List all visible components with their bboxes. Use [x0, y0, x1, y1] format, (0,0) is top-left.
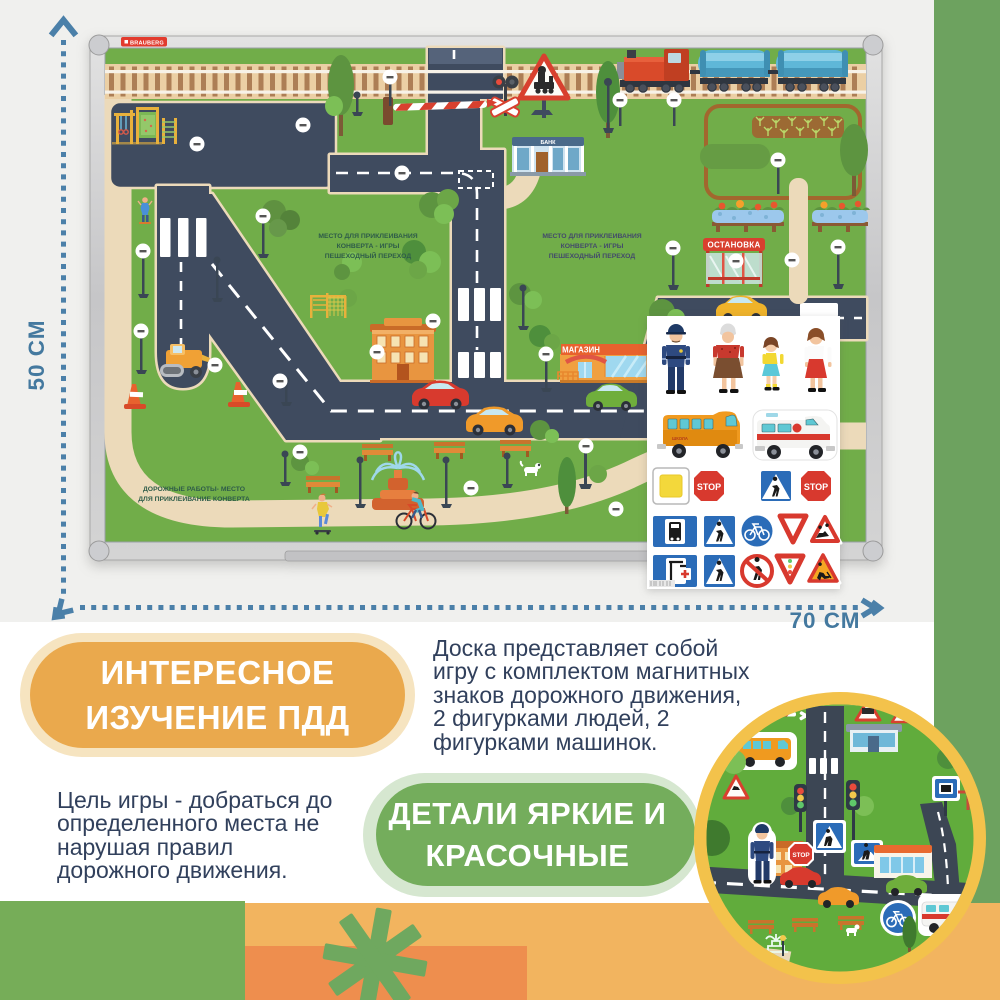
svg-text:ШКОЛА: ШКОЛА	[672, 436, 688, 441]
svg-text:STOP: STOP	[792, 852, 810, 859]
svg-text:STOP: STOP	[804, 482, 828, 492]
svg-text:STOP: STOP	[697, 482, 721, 492]
svg-text:70 СМ: 70 СМ	[790, 608, 861, 633]
svg-text:50 СМ: 50 СМ	[24, 320, 49, 391]
